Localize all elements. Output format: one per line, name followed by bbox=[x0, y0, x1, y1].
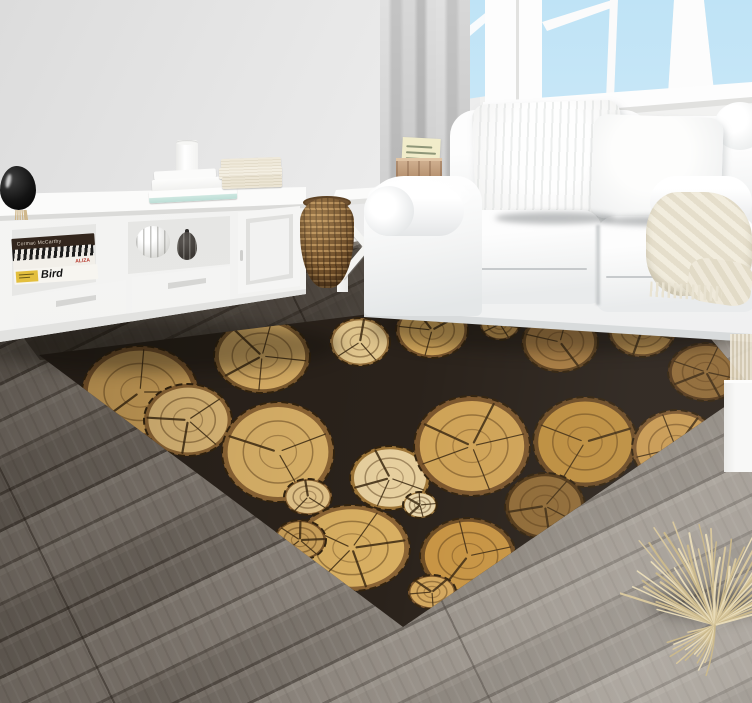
white-side-unit bbox=[724, 380, 752, 472]
card-scribble bbox=[406, 145, 432, 148]
bolster-pillow-end-cap bbox=[364, 186, 414, 236]
shelf-book-stack: Cormac McCarthy ALIZA Bird bbox=[11, 233, 98, 289]
book-yellow-label bbox=[16, 270, 39, 283]
cabinet-door-handle bbox=[240, 250, 243, 261]
dried-stems bbox=[730, 334, 752, 384]
sofa-seat-gap bbox=[596, 225, 600, 305]
card-scribble bbox=[406, 151, 436, 155]
pampas-shadow bbox=[650, 588, 752, 618]
cream-book-3 bbox=[222, 175, 282, 189]
wire-sphere-ornament bbox=[136, 226, 170, 258]
pillow-crease-shadow bbox=[495, 212, 615, 224]
wire-gourd-ornament bbox=[177, 232, 197, 260]
black-vase bbox=[0, 166, 36, 210]
living-room-scene: Cormac McCarthy ALIZA Bird bbox=[0, 0, 752, 703]
